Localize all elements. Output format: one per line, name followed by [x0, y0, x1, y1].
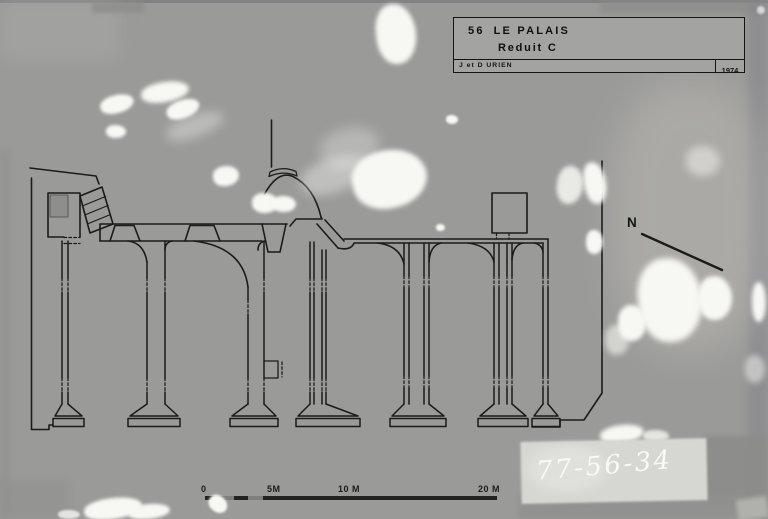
scale-label-0: 0 — [201, 484, 207, 494]
scale-label-10m: 10 M — [338, 484, 360, 494]
embrasure — [262, 224, 286, 252]
pier-base — [296, 404, 360, 427]
pier-walls-left — [62, 241, 326, 404]
sheet-title: 56LE PALAIS — [468, 25, 570, 37]
subtitle-text: Reduit C — [498, 42, 558, 54]
pier-base — [478, 404, 528, 427]
scale-label-20m: 20 M — [478, 484, 500, 494]
title-text: LE PALAIS — [494, 25, 570, 37]
pier-base — [230, 404, 278, 427]
gate-funnel — [317, 220, 344, 248]
scale-segment — [248, 496, 262, 500]
title-block-footer: J et D URIEN 1974 — [454, 59, 744, 72]
scale-bar — [205, 496, 497, 500]
sheet-number: 56 — [468, 25, 485, 37]
embrasure — [110, 226, 140, 242]
pier-base — [128, 404, 180, 427]
room-corner-arc — [338, 244, 354, 249]
embrasure — [185, 226, 220, 242]
gate-dome-arc — [261, 175, 321, 217]
scale-segment — [263, 496, 277, 500]
authors-text: J et D URIEN — [459, 62, 513, 69]
scale-segment — [234, 496, 248, 500]
door-opening-dashes — [62, 233, 548, 392]
pier-base — [390, 404, 446, 427]
year-text: 1974 — [722, 66, 739, 75]
left-roof-diagonal — [30, 168, 99, 184]
square-room-insert — [50, 195, 68, 217]
pier-base — [532, 404, 560, 427]
north-arrow — [642, 234, 722, 270]
wall-notch — [264, 361, 278, 378]
scale-segment — [205, 496, 219, 500]
vault-corner-arcs-right — [378, 243, 543, 264]
pier-base — [53, 404, 84, 427]
archive-photo: 56LE PALAIS Reduit C J et D URIEN 1974 N… — [0, 0, 768, 519]
title-block: 56LE PALAIS Reduit C J et D URIEN 1974 — [453, 17, 745, 73]
front-wall-outer — [100, 224, 287, 241]
year-cell: 1974 — [715, 60, 744, 72]
north-label: N — [627, 215, 637, 230]
front-wall-right — [344, 239, 548, 243]
annex-room — [492, 193, 527, 233]
vault-corner-arcs — [128, 241, 265, 287]
scale-label-5m: 5M — [267, 484, 281, 494]
pier-walls-right — [404, 239, 548, 404]
scale-segment — [219, 496, 233, 500]
scale-segment — [277, 496, 497, 500]
